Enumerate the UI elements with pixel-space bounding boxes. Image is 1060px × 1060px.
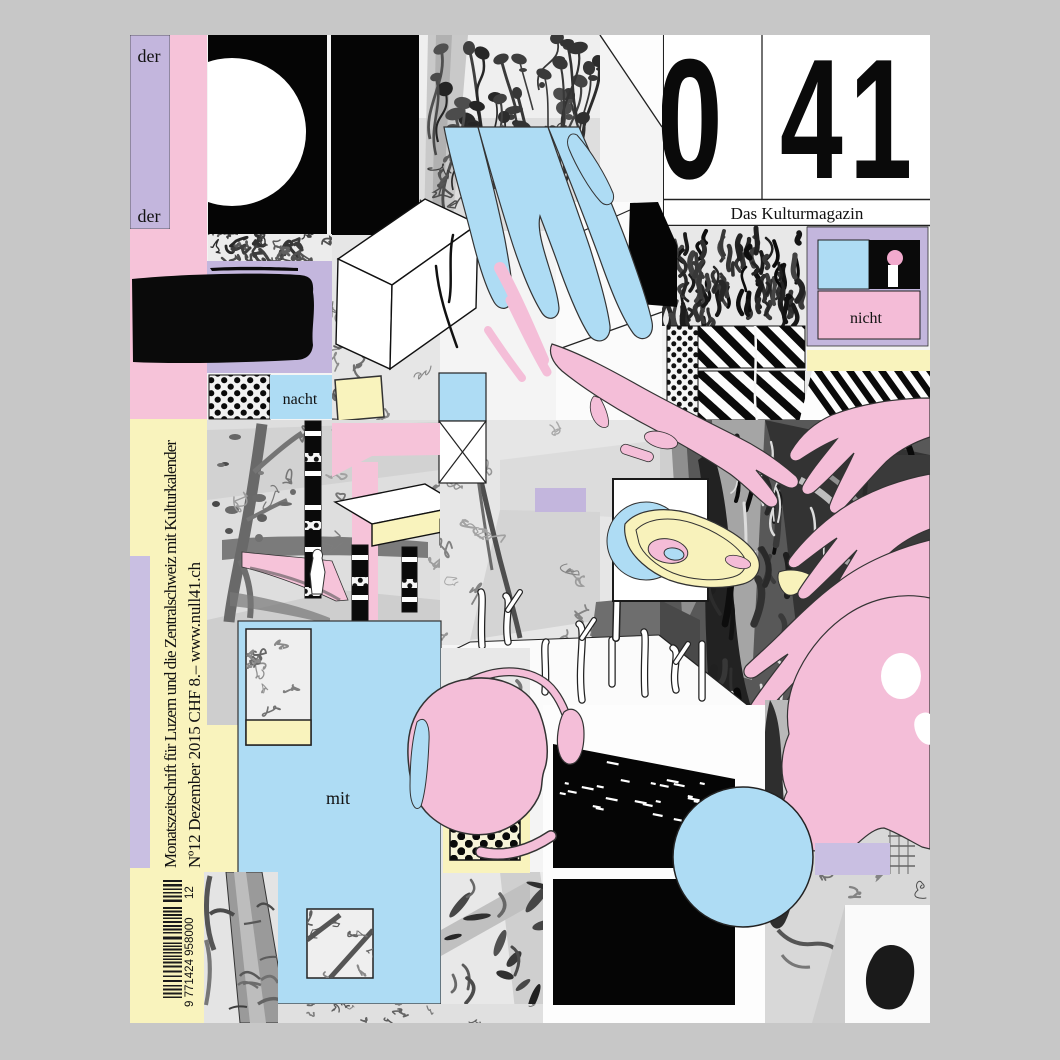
- svg-text:der: der: [138, 206, 161, 226]
- svg-text:der: der: [138, 46, 161, 66]
- svg-text:0: 0: [657, 24, 723, 215]
- svg-text:mit: mit: [326, 788, 350, 808]
- svg-text:41: 41: [780, 23, 919, 214]
- svg-text:nacht: nacht: [283, 391, 318, 408]
- svg-text:Nº12 Dezember 2015 CHF 8.–: Nº12 Dezember 2015 CHF 8.– www.null41.ch: [185, 562, 204, 869]
- svg-text:9 771424 958000: 9 771424 958000: [184, 917, 196, 1007]
- svg-text:12: 12: [184, 886, 196, 899]
- svg-text:Das Kulturmagazin: Das Kulturmagazin: [731, 204, 864, 223]
- svg-text:nicht: nicht: [850, 310, 883, 327]
- svg-text:Monatszeitschrift für Luzern u: Monatszeitschrift für Luzern und die Zen…: [161, 440, 180, 868]
